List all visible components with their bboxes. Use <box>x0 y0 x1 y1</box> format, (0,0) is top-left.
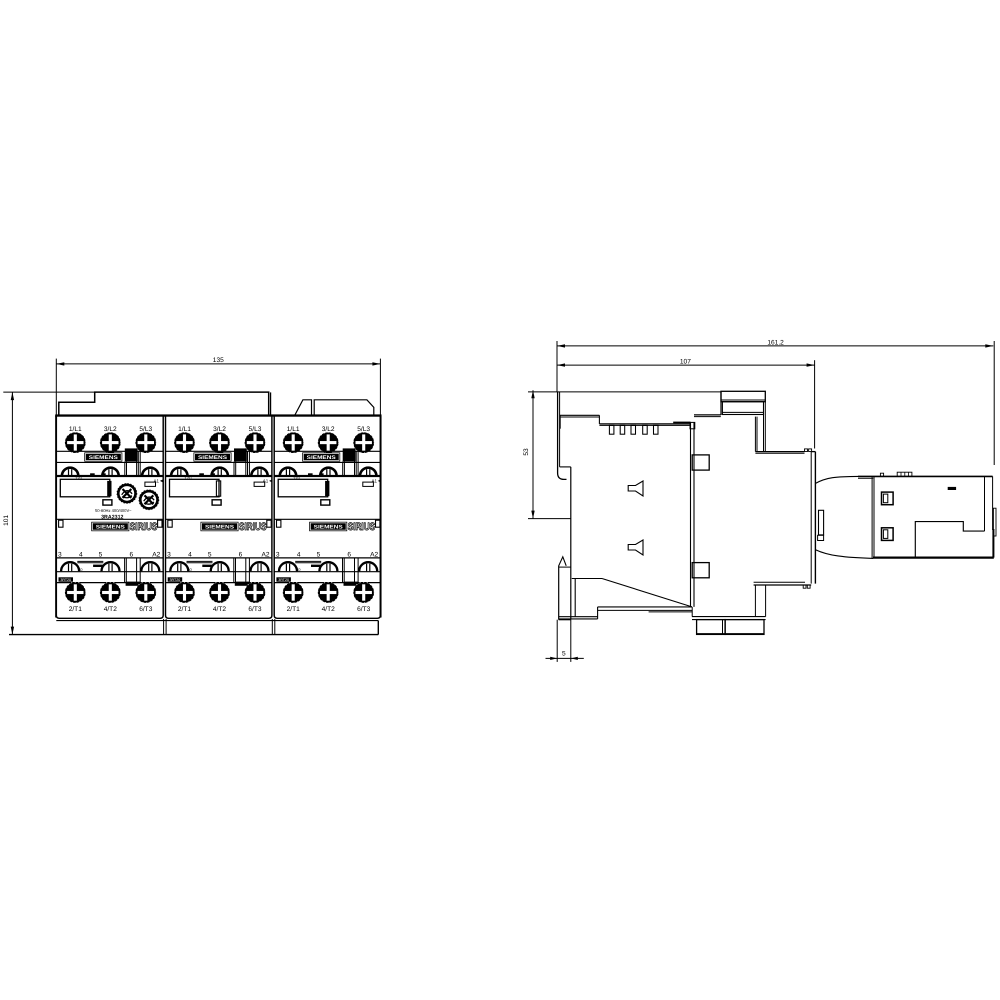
svg-text:5/L3: 5/L3 <box>357 426 370 433</box>
svg-text:6/T3: 6/T3 <box>139 606 153 613</box>
svg-text:6/T3: 6/T3 <box>357 606 371 613</box>
svg-text:SIEMENS: SIEMENS <box>89 455 119 461</box>
svg-text:4/T2: 4/T2 <box>104 606 118 613</box>
svg-text:12U: 12U <box>184 476 191 481</box>
svg-text:161.2: 161.2 <box>767 339 784 346</box>
svg-text:4/T2: 4/T2 <box>213 606 227 613</box>
svg-text:135: 135 <box>213 357 224 364</box>
svg-text:SIEMENS: SIEMENS <box>205 525 235 531</box>
svg-text:SIEMENS: SIEMENS <box>307 455 337 461</box>
svg-text:1/L1: 1/L1 <box>69 426 82 433</box>
svg-text:1/L1: 1/L1 <box>178 426 191 433</box>
svg-text:3/L2: 3/L2 <box>213 426 226 433</box>
svg-text:101: 101 <box>3 515 10 526</box>
svg-text:4/T2: 4/T2 <box>322 606 336 613</box>
svg-text:SIEMENS: SIEMENS <box>198 455 228 461</box>
svg-text:3/L2: 3/L2 <box>104 426 117 433</box>
svg-text:12U: 12U <box>293 476 300 481</box>
svg-text:6/T3: 6/T3 <box>248 606 262 613</box>
svg-text:SIRIUS: SIRIUS <box>130 521 158 533</box>
svg-text:2/T1: 2/T1 <box>178 606 192 613</box>
svg-text:12U: 12U <box>75 476 82 481</box>
svg-text:53: 53 <box>523 448 530 456</box>
svg-text:107: 107 <box>680 359 691 366</box>
svg-text:3RT20: 3RT20 <box>170 578 181 582</box>
svg-text:2/T1: 2/T1 <box>287 606 301 613</box>
svg-text:1/L1: 1/L1 <box>287 426 300 433</box>
svg-text:SIEMENS: SIEMENS <box>314 525 344 531</box>
svg-text:SIRIUS: SIRIUS <box>348 521 376 533</box>
svg-text:2/T1: 2/T1 <box>69 606 83 613</box>
svg-text:3RT20: 3RT20 <box>60 578 71 582</box>
svg-text:3RT20: 3RT20 <box>278 578 289 582</box>
svg-text:SIEMENS: SIEMENS <box>96 525 126 531</box>
svg-text:5: 5 <box>562 650 566 657</box>
svg-text:50-60Hz 400/400V~: 50-60Hz 400/400V~ <box>95 508 132 513</box>
svg-text:5/L3: 5/L3 <box>139 426 152 433</box>
svg-text:SIRIUS: SIRIUS <box>239 521 267 533</box>
svg-text:3/L2: 3/L2 <box>322 426 335 433</box>
svg-text:5/L3: 5/L3 <box>249 426 262 433</box>
